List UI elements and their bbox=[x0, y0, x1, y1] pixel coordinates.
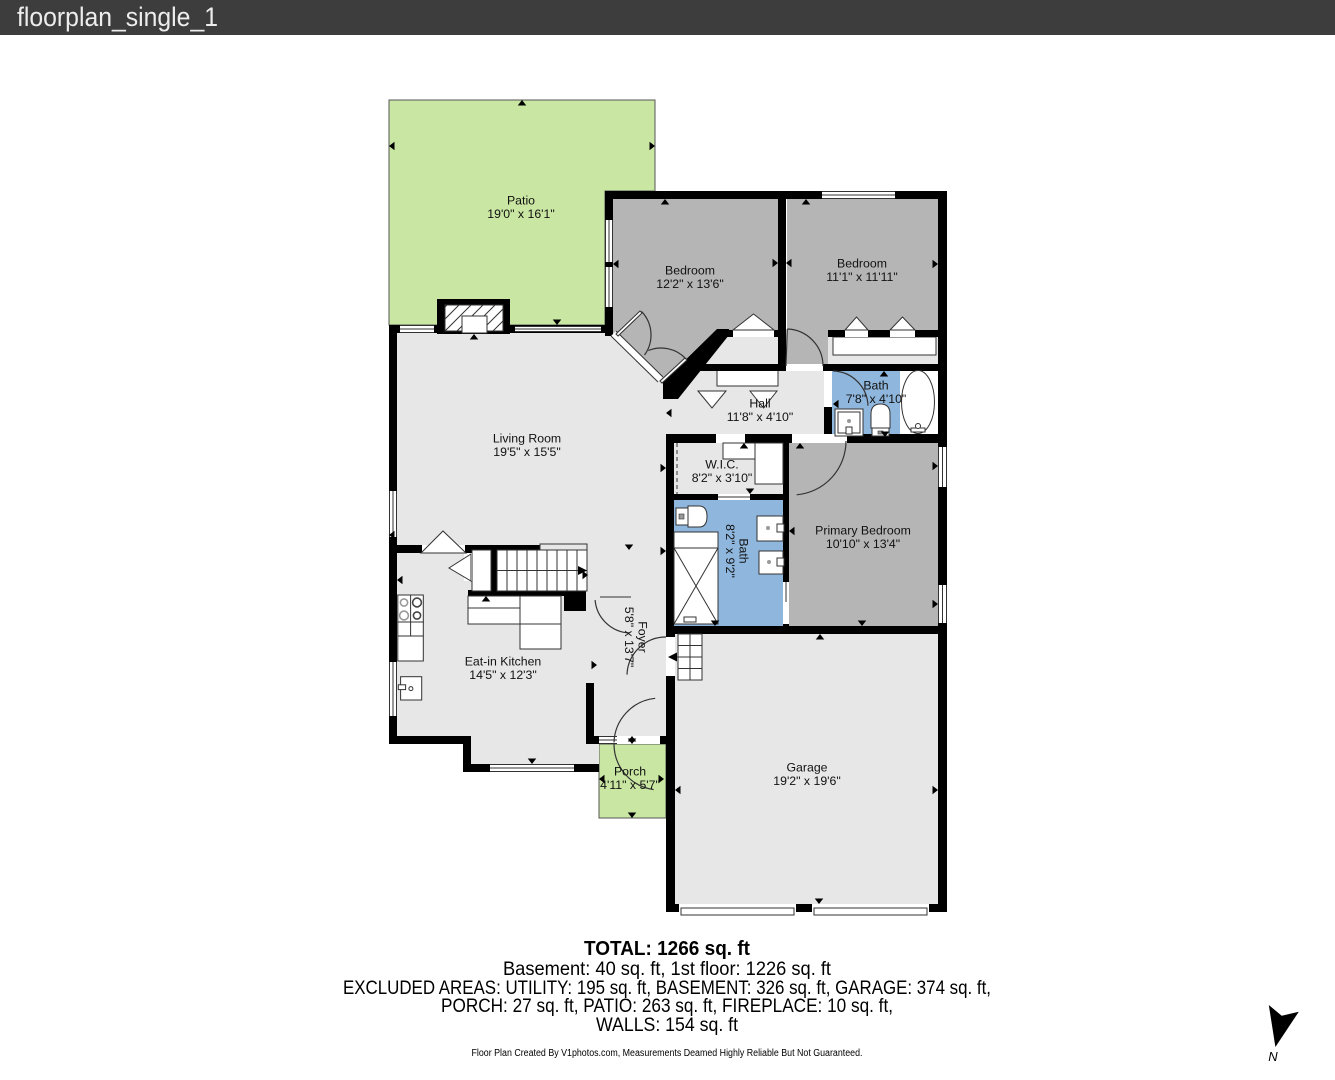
svg-text:Bath: Bath bbox=[736, 538, 750, 563]
svg-text:11'8" x 4'10": 11'8" x 4'10" bbox=[727, 410, 794, 424]
svg-text:Primary Bedroom: Primary Bedroom bbox=[815, 524, 911, 538]
svg-text:8'2" x 3'10": 8'2" x 3'10" bbox=[692, 471, 753, 485]
svg-text:Bedroom: Bedroom bbox=[665, 264, 715, 278]
svg-text:Patio: Patio bbox=[507, 194, 535, 208]
svg-text:Porch: Porch bbox=[614, 765, 646, 779]
svg-text:N: N bbox=[1268, 1049, 1278, 1064]
svg-text:Hall: Hall bbox=[749, 397, 770, 411]
svg-text:WALLS: 154 sq. ft: WALLS: 154 sq. ft bbox=[596, 1014, 739, 1036]
svg-text:19'2" x 19'6": 19'2" x 19'6" bbox=[773, 774, 840, 788]
svg-text:8'2" x 9'2": 8'2" x 9'2" bbox=[723, 524, 737, 578]
svg-text:Living Room: Living Room bbox=[493, 432, 561, 446]
svg-text:19'0" x 16'1": 19'0" x 16'1" bbox=[487, 207, 554, 221]
svg-text:Bedroom: Bedroom bbox=[837, 257, 887, 271]
svg-text:10'10" x 13'4": 10'10" x 13'4" bbox=[826, 537, 900, 551]
svg-text:4'11" x 5'7": 4'11" x 5'7" bbox=[600, 778, 660, 792]
svg-text:TOTAL: 1266 sq. ft: TOTAL: 1266 sq. ft bbox=[584, 938, 750, 960]
svg-text:14'5" x 12'3": 14'5" x 12'3" bbox=[469, 668, 536, 682]
svg-text:5'8" x 13'7": 5'8" x 13'7" bbox=[622, 607, 636, 668]
svg-text:19'5" x 15'5": 19'5" x 15'5" bbox=[493, 445, 560, 459]
svg-text:Bath: Bath bbox=[863, 379, 888, 393]
svg-text:7'8" x 4'10": 7'8" x 4'10" bbox=[846, 392, 907, 406]
svg-text:Floor Plan Created By V1photos: Floor Plan Created By V1photos.com, Meas… bbox=[472, 1048, 863, 1059]
svg-text:Eat-in Kitchen: Eat-in Kitchen bbox=[465, 655, 542, 669]
svg-text:Foyer: Foyer bbox=[635, 621, 649, 652]
svg-text:11'1" x 11'11": 11'1" x 11'11" bbox=[826, 270, 898, 284]
svg-text:Garage: Garage bbox=[786, 761, 827, 775]
svg-text:floorplan_single_1: floorplan_single_1 bbox=[17, 2, 218, 32]
svg-text:12'2" x 13'6": 12'2" x 13'6" bbox=[656, 277, 723, 291]
svg-text:W.I.C.: W.I.C. bbox=[705, 458, 738, 472]
